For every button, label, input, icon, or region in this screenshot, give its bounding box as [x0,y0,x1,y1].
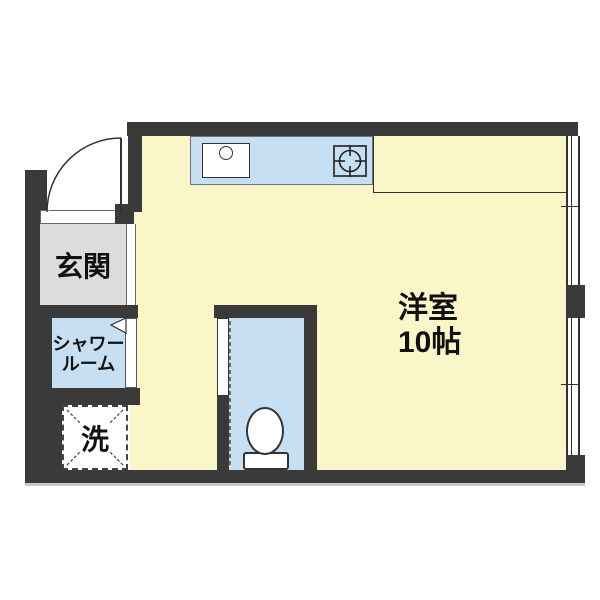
main-room-size: 10帖 [398,326,461,360]
bottom-wall [25,470,585,483]
toilet-icon [246,407,284,455]
door-hinge-stub-wall [25,170,47,212]
right-mid-wall [566,285,585,318]
right-bottom-corner-wall [566,455,585,470]
shower-name-line2: ルーム [62,354,115,374]
main-room-floor [130,136,567,470]
window-sash-tick-upper [561,206,578,207]
entrance-shower-wall [25,305,138,318]
entrance-label: 玄関 [40,224,126,305]
shower-laundry-wall [25,388,140,405]
window-inner-line [571,136,572,285]
toilet-door-pocket-wall [217,396,229,470]
plan-shadow-line [25,483,585,486]
door-latch-stub-wall [115,204,134,224]
faucet-icon [219,146,233,160]
laundry-left-wall [40,405,62,470]
shower-room-label: シャワー ルーム [50,318,127,390]
toilet-sliding-door [217,318,229,396]
kitchen-zone-line-horizontal [373,192,567,193]
top-wall [127,122,578,136]
entrance-door-swing-icon [47,138,121,212]
main-room-label: 洋室 10帖 [398,291,478,361]
floor-plan: 玄関 シャワー ルーム 洗 洋室 10帖 [0,0,600,600]
window-sash-tick-lower [561,384,578,385]
window-inner-line [571,318,572,455]
main-room-name: 洋室 [398,292,458,326]
laundry-label: 洗 [62,405,128,470]
stove-icon [333,145,367,177]
entry-right-wall [128,136,142,212]
kitchen-zone-line-vertical [373,136,374,192]
entrance-step-edge [126,224,136,305]
window-right-upper [566,136,580,285]
shower-name-line1: シャワー [53,334,125,354]
entrance-name: 玄関 [55,245,111,285]
laundry-name: 洗 [81,418,109,458]
window-right-lower [566,318,580,455]
toilet-right-wall [304,318,317,470]
toilet-top-wall [214,305,317,318]
left-wall [25,170,40,483]
